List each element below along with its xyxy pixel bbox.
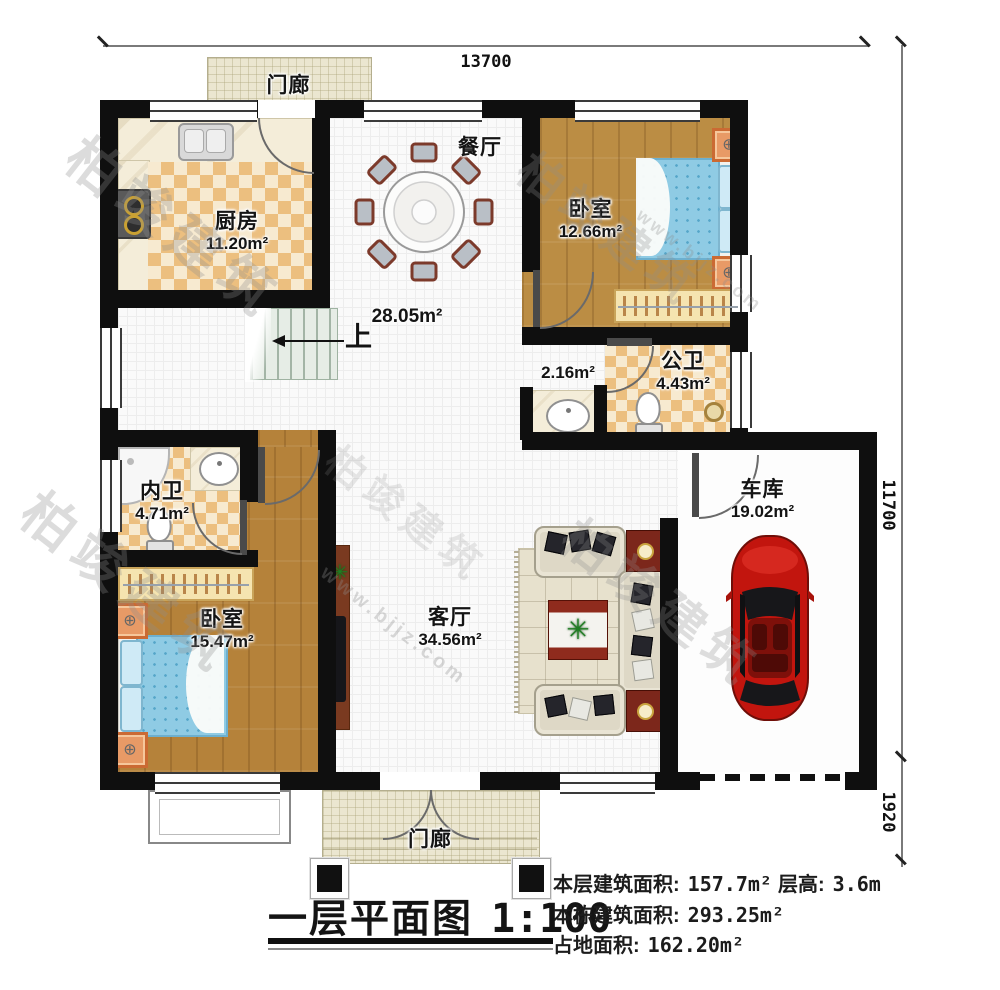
kitchen-sink — [178, 123, 234, 161]
room-label-porch-bottom: 门廊 — [322, 828, 538, 852]
room-label-dining: 餐厅 — [428, 136, 532, 160]
interior-wall — [318, 430, 336, 772]
room-area: 2.16m² — [526, 363, 610, 382]
window — [100, 328, 122, 408]
up-label: 上 — [342, 322, 376, 352]
room-name: 卧室 — [528, 198, 653, 222]
interior-wall — [520, 387, 533, 440]
bay-window-frame — [159, 799, 280, 835]
room-area: 4.43m² — [618, 374, 748, 393]
floor-drain — [704, 402, 724, 422]
room-label-porch-top: 门廊 — [207, 74, 370, 98]
stat-footprint-area: 占地面积:162.20m² — [553, 929, 744, 958]
stat-label: 层高: — [778, 874, 825, 896]
title-underline-thin — [268, 948, 553, 950]
room-label-kitchen: 厨房 11.20m² — [162, 210, 312, 253]
floor-plan-canvas: 13700 11700 1920 — [0, 0, 1000, 990]
sofa-pillow — [593, 694, 615, 716]
interior-wall — [660, 518, 678, 772]
sofa-pillow — [544, 694, 567, 717]
door-leaf — [533, 270, 540, 327]
exterior-wall — [859, 432, 877, 790]
burner — [124, 196, 144, 216]
garage-door-dashed — [700, 774, 845, 781]
sink-basin — [184, 129, 204, 153]
sofa-pillow — [544, 531, 568, 555]
room-name: 门廊 — [322, 828, 538, 852]
interior-wall — [240, 447, 258, 502]
room-name: 客厅 — [393, 606, 507, 630]
sofa-pillow — [630, 582, 653, 605]
burner — [124, 215, 144, 235]
window — [730, 255, 752, 312]
wardrobe — [118, 567, 254, 601]
interior-wall — [594, 385, 607, 438]
exterior-wall — [522, 432, 877, 450]
door-leaf — [258, 447, 265, 503]
stat-storey-height: 层高:3.6m — [778, 868, 881, 897]
window — [150, 100, 257, 122]
sink-basin — [206, 129, 226, 153]
room-label-living: 客厅 34.56m² — [393, 606, 507, 649]
window — [575, 100, 700, 122]
room-area: 11.20m² — [162, 234, 312, 253]
window — [560, 772, 655, 794]
exterior-wall — [678, 772, 700, 790]
title-underline — [268, 938, 553, 944]
room-label-bath-ensuite: 内卫 4.71m² — [108, 480, 216, 523]
door-opening — [258, 100, 315, 118]
door-opening — [380, 772, 480, 790]
stat-label: 本层建筑面积: — [553, 874, 680, 896]
wardrobe — [614, 289, 742, 323]
dimension-line-right — [901, 45, 903, 867]
stairs-up-label: 上 — [342, 322, 376, 352]
sofa-pillow — [569, 530, 592, 553]
room-name: 公卫 — [618, 350, 748, 374]
stat-label: 本栋建筑面积: — [553, 905, 680, 927]
room-name: 餐厅 — [428, 136, 532, 160]
stat-value: 157.7m² — [688, 872, 772, 896]
doorway-threshold — [258, 430, 318, 447]
stove — [115, 189, 151, 239]
side-table — [626, 690, 664, 732]
room-name: 卧室 — [158, 608, 286, 632]
sofa-pillow — [632, 659, 655, 682]
stat-floor-area: 本层建筑面积:157.7m² — [553, 868, 772, 897]
dimension-line-top — [103, 45, 869, 47]
pillow — [120, 686, 143, 732]
room-area: 15.47m² — [158, 632, 286, 651]
pillow — [120, 640, 143, 686]
door-leaf — [607, 338, 652, 346]
dimension-label-height: 11700 — [878, 460, 898, 550]
room-name: 内卫 — [108, 480, 216, 504]
side-table — [626, 530, 664, 572]
dining-table-set — [354, 142, 494, 282]
room-name: 车库 — [700, 478, 825, 502]
stairs-direction-line — [284, 340, 344, 342]
stairs-arrow-icon — [272, 335, 285, 347]
wash-basin — [546, 399, 590, 433]
stat-building-area: 本栋建筑面积:293.25m² — [553, 899, 784, 928]
room-area: 12.66m² — [528, 222, 653, 241]
stairs — [250, 308, 338, 380]
window — [364, 100, 482, 122]
stat-label: 占地面积: — [553, 935, 640, 957]
interior-wall — [118, 290, 330, 308]
interior-wall — [312, 118, 330, 308]
room-label-garage: 车库 19.02m² — [700, 478, 825, 521]
room-area: 34.56m² — [393, 630, 507, 649]
room-area-vanity: 2.16m² — [526, 363, 610, 382]
stat-value: 3.6m — [833, 872, 881, 896]
exterior-wall — [845, 772, 877, 790]
room-label-bath-public: 公卫 4.43m² — [618, 350, 748, 393]
bay-window — [148, 790, 291, 844]
room-name: 门廊 — [207, 74, 370, 98]
stat-value: 162.20m² — [648, 933, 744, 957]
dimension-label-width: 13700 — [376, 52, 596, 72]
room-label-bedroom-top-right: 卧室 12.66m² — [528, 198, 653, 241]
stat-value: 293.25m² — [688, 903, 784, 927]
dimension-label-porch-depth: 1920 — [878, 777, 898, 847]
door-leaf — [692, 453, 699, 517]
room-label-bedroom-bottom-left: 卧室 15.47m² — [158, 608, 286, 651]
coffee-table — [548, 600, 608, 660]
room-name: 厨房 — [162, 210, 312, 234]
car — [726, 532, 814, 724]
room-area: 19.02m² — [700, 502, 825, 521]
room-area: 4.71m² — [108, 504, 216, 523]
sofa-pillow — [631, 635, 653, 657]
interior-wall — [100, 430, 258, 447]
sofa-pillow — [631, 608, 655, 632]
plan-title: 一层平面图 — [268, 888, 473, 944]
window — [155, 772, 280, 794]
